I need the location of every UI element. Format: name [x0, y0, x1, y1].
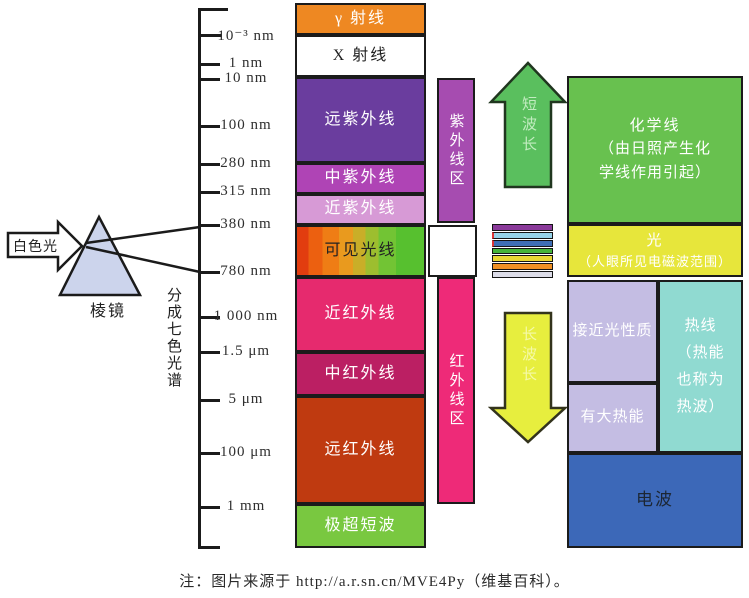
strip-row-orange	[492, 263, 553, 270]
scale-top-cap	[198, 8, 228, 11]
light-block: 光 （人眼所见电磁波范围）	[567, 224, 743, 277]
heat-ray-block: 热线 （热能 也称为 热波）	[658, 280, 743, 453]
tick-label: 315 nm	[205, 183, 287, 200]
band-mid-ir: 中红外线	[295, 352, 426, 396]
tick-label: 5 μm	[205, 391, 287, 408]
tick-label: 100 μm	[205, 444, 287, 461]
band-far-uv: 远紫外线	[295, 77, 426, 163]
strip-row-blue	[492, 240, 553, 247]
white-light-label: 白色光	[13, 236, 59, 256]
ir-region-bar: 红外线区	[437, 277, 475, 504]
visible-spectrum-strip	[492, 224, 553, 278]
tick-label: 1.5 μm	[205, 343, 287, 360]
big-heat-energy-block: 有大热能	[567, 383, 658, 453]
tick-label: 10 nm	[205, 70, 287, 87]
band-near-uv: 近紫外线	[295, 194, 426, 225]
band-visible-light: 可见光线	[295, 225, 426, 277]
split-seven-colors-label: 分成七色光谱	[163, 287, 184, 395]
band-ultra-short-wave: 极超短波	[295, 504, 426, 548]
long-wavelength-label: 长波长	[518, 326, 539, 406]
ir-region-label: 红外线区	[446, 353, 467, 429]
strip-row-yellow	[492, 255, 553, 262]
em-spectrum-diagram: 白色光 棱镜 分成七色光谱 10⁻³ nm 1 nm 10 nm 100 nm …	[0, 0, 749, 598]
band-far-ir: 远红外线	[295, 396, 426, 504]
strip-row-lightblue	[492, 232, 553, 239]
visible-light-window	[428, 225, 477, 277]
band-mid-uv: 中紫外线	[295, 163, 426, 194]
strip-row-green	[492, 248, 553, 255]
tick-label: 280 nm	[205, 155, 287, 172]
tick-label: 1 mm	[205, 498, 287, 515]
scale-bottom-cap	[198, 546, 220, 549]
light-title: 光	[646, 230, 663, 253]
near-light-property-block: 接近光性质	[567, 280, 658, 383]
band-near-ir: 近红外线	[295, 277, 426, 352]
chemical-ray-title: 化学线	[629, 115, 680, 138]
short-wavelength-label: 短波长	[518, 96, 539, 176]
radio-wave-block: 电波	[567, 453, 743, 548]
source-note: 注：图片来源于 http://a.r.sn.cn/MVE4Py（维基百科）。	[0, 570, 749, 591]
band-gamma-ray: γ 射线	[295, 3, 426, 35]
uv-region-label: 紫外线区	[446, 113, 467, 189]
tick-label: 1 000 nm	[205, 308, 287, 325]
tick-label: 100 nm	[205, 117, 287, 134]
chemical-ray-block: 化学线 （由日照产生化 学线作用引起）	[567, 76, 743, 224]
tick-label: 10⁻³ nm	[205, 26, 287, 45]
strip-row-purple	[492, 224, 553, 231]
uv-region-bar: 紫外线区	[437, 78, 475, 223]
tick-label: 780 nm	[205, 263, 287, 280]
band-x-ray: X 射线	[295, 35, 426, 77]
scale-axis	[198, 8, 201, 549]
strip-row-white	[492, 271, 553, 278]
tick-label: 380 nm	[205, 216, 287, 233]
prism-label: 棱镜	[78, 297, 138, 321]
